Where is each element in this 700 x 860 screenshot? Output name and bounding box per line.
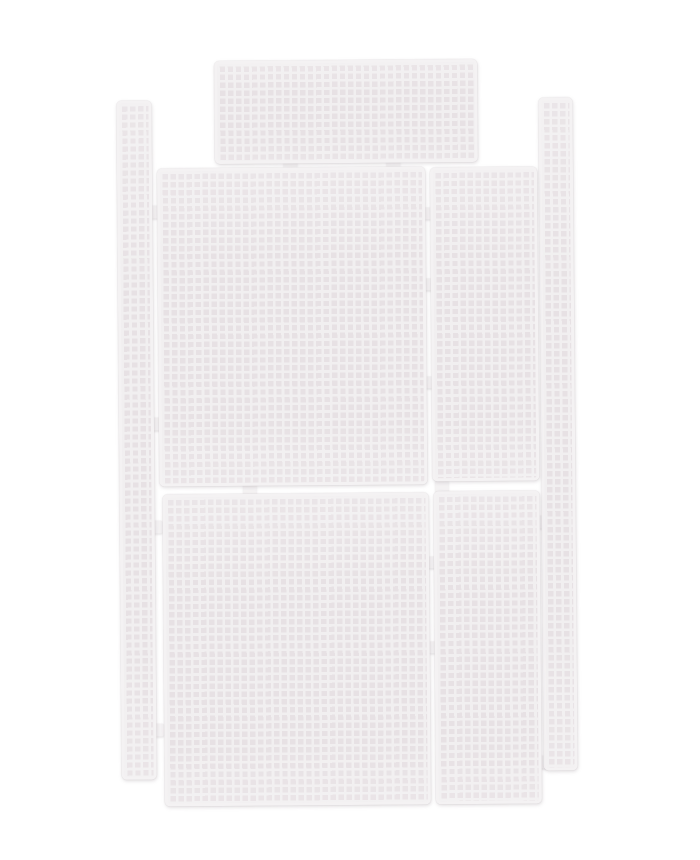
mesh-panel-set xyxy=(0,0,700,860)
mesh-grid xyxy=(217,62,475,161)
mesh-grid xyxy=(166,495,428,803)
mesh-grid xyxy=(433,170,536,479)
mesh-grid xyxy=(437,494,539,802)
top-panel xyxy=(214,59,478,164)
middle-right-panel xyxy=(430,167,539,482)
right-side-strip xyxy=(538,97,577,770)
mesh-grid xyxy=(160,169,424,483)
left-side-strip xyxy=(116,101,156,780)
product-photo xyxy=(0,0,700,860)
middle-left-panel xyxy=(157,166,427,486)
mesh-grid xyxy=(541,100,574,767)
bottom-left-panel xyxy=(163,492,431,806)
mesh-grid xyxy=(119,104,153,777)
bottom-right-panel xyxy=(433,491,541,805)
